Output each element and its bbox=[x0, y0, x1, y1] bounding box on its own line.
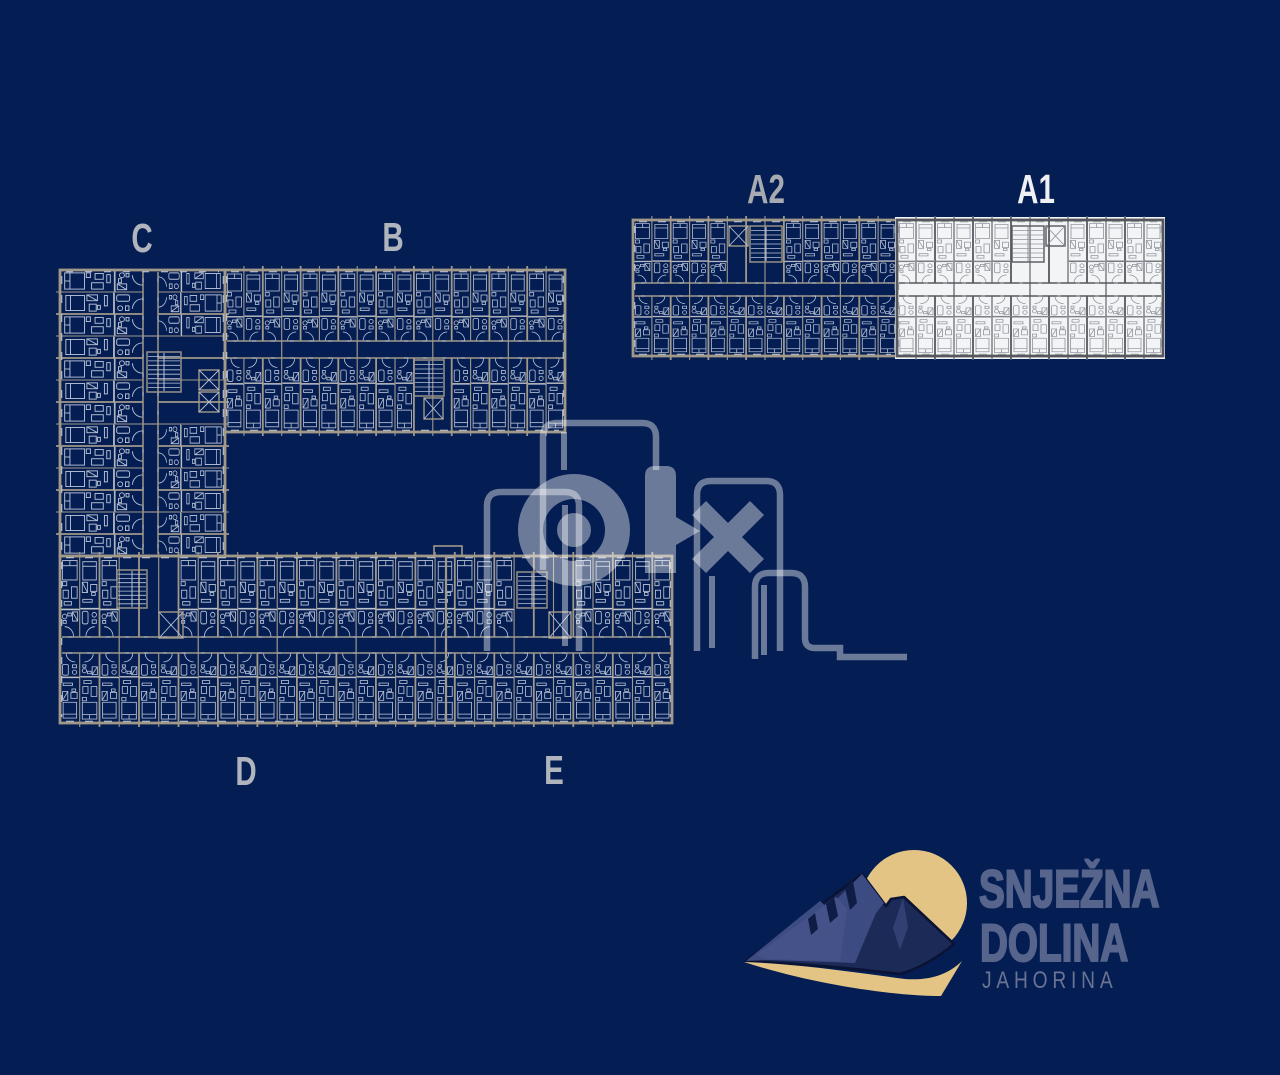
svg-text:DOLINA: DOLINA bbox=[980, 913, 1128, 972]
svg-text:SNJEŽNA: SNJEŽNA bbox=[979, 859, 1159, 918]
svg-text:JAHORINA: JAHORINA bbox=[982, 966, 1117, 994]
svg-text:A1: A1 bbox=[1017, 166, 1055, 212]
svg-text:C: C bbox=[131, 215, 152, 261]
svg-text:A2: A2 bbox=[747, 166, 785, 212]
svg-text:E: E bbox=[544, 747, 564, 793]
svg-text:D: D bbox=[235, 748, 256, 794]
svg-text:B: B bbox=[382, 214, 403, 260]
